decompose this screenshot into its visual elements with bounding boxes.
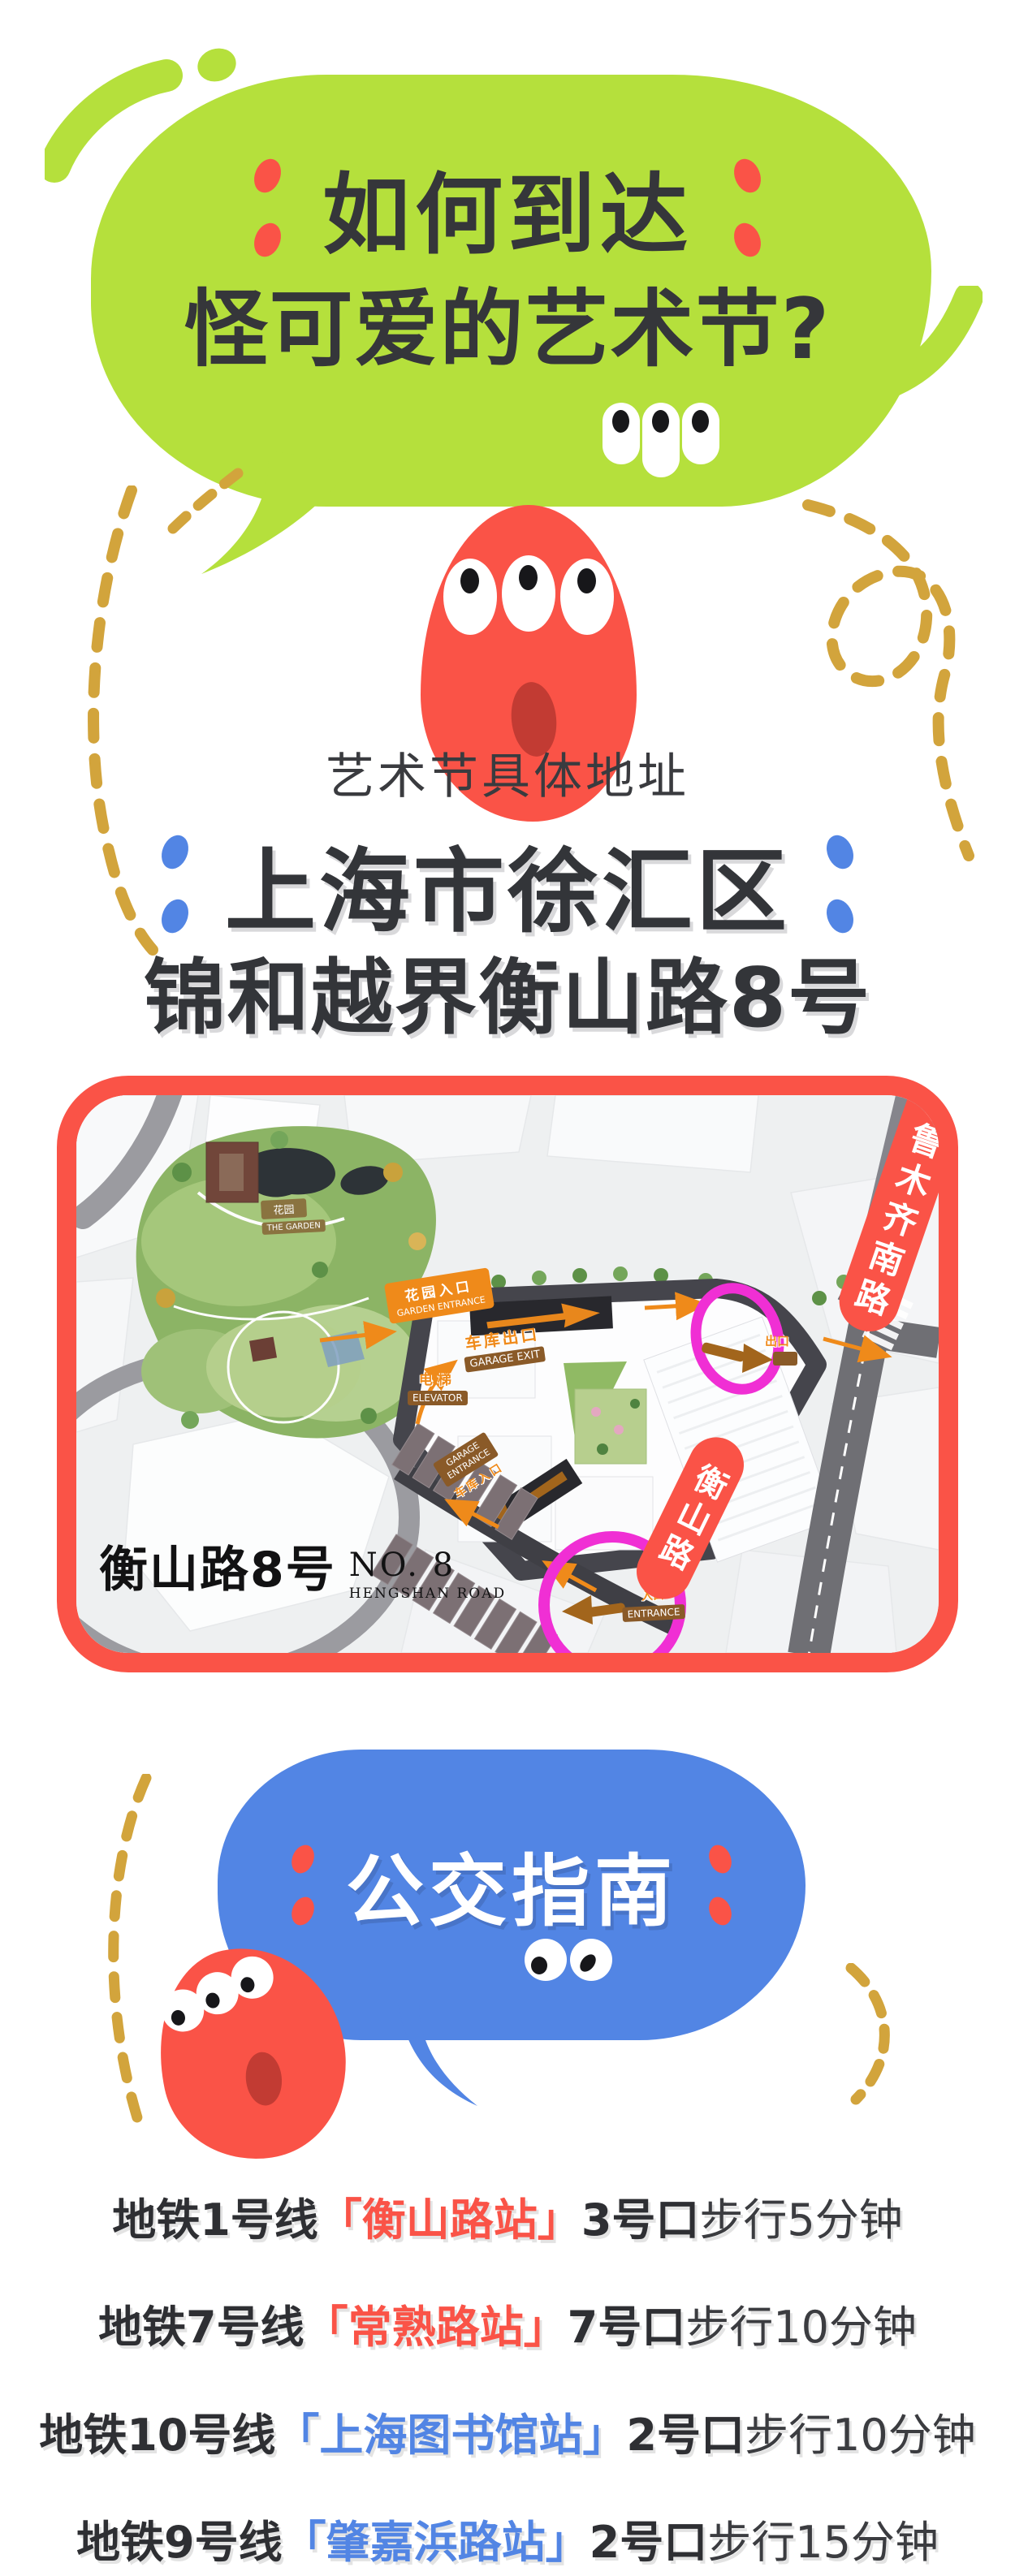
transit-bubble-tail <box>380 2004 506 2117</box>
blue-colon-decoration <box>162 835 188 934</box>
red-colon-decoration <box>710 1845 731 1926</box>
eye-icon <box>525 1939 567 1981</box>
red-colon-decoration <box>255 158 280 257</box>
address-city-row: 上海市徐汇区 <box>0 818 1015 950</box>
metro-line-4: 地铁9号线「肇嘉浜路站」2号口步行15分钟 <box>0 2506 1015 2570</box>
elevator-cn: 电梯 <box>408 1368 468 1388</box>
transit-title-row: 公交指南 <box>203 1828 820 1941</box>
address-venue: 锦和越界衡山路8号 <box>144 932 871 1051</box>
eye-icon <box>570 1939 612 1981</box>
metro-line-1: 地铁1号线「衡山路站」3号口步行5分钟 <box>0 2184 1015 2248</box>
metro-station: 「上海图书馆站」 <box>275 2399 626 2463</box>
metro-line-3: 地铁10号线「上海图书馆站」2号口步行10分钟 <box>0 2399 1015 2463</box>
metro-station: 「肇嘉浜路站」 <box>283 2506 590 2570</box>
metro-walk-time: 步行5分钟 <box>699 2184 902 2248</box>
map-logo-cn: 衡山路8号 <box>99 1543 336 1597</box>
metro-exit: 2号口 <box>590 2506 708 2570</box>
exit-label: 出口 <box>765 1332 797 1366</box>
red-colon-decoration <box>292 1845 313 1926</box>
metro-walk-time: 步行10分钟 <box>745 2399 976 2463</box>
eye-icon <box>682 403 719 464</box>
eye-icon <box>603 403 640 464</box>
eye-icon <box>502 555 555 632</box>
mouth-icon <box>244 2050 285 2107</box>
eye-icon <box>642 403 680 477</box>
festival-directions-poster: 如何到达 怪可爱的艺术节? 艺术节具体地址 上海市徐汇区 锦和越界衡山路8号 <box>0 0 1015 2576</box>
address-city: 上海市徐汇区 <box>225 818 790 950</box>
transit-title: 公交指南 <box>346 1828 677 1941</box>
exit-cn: 出口 <box>765 1332 797 1349</box>
metro-line-name: 地铁9号线 <box>76 2506 283 2570</box>
metro-walk-time: 步行15分钟 <box>707 2506 939 2570</box>
blue-colon-decoration <box>827 835 853 934</box>
garden-label: 花园 THE GARDEN <box>261 1197 326 1235</box>
metro-line-2: 地铁7号线「常熟路站」7号口步行10分钟 <box>0 2291 1015 2355</box>
eye-icon <box>443 559 497 635</box>
metro-station: 「常熟路站」 <box>304 2291 568 2355</box>
elevator-label: 电梯 ELEVATOR <box>408 1368 468 1405</box>
exit-chip <box>773 1352 797 1366</box>
bubble-three-eyes <box>603 403 719 477</box>
map-logo-no8: NO. 8 <box>349 1548 506 1582</box>
metro-exit: 7号口 <box>568 2291 686 2355</box>
hero-title-row1: 如何到达 <box>0 145 1015 271</box>
address-venue-row: 锦和越界衡山路8号 <box>0 932 1015 1051</box>
metro-line-name: 地铁1号线 <box>112 2184 318 2248</box>
garden-label-cn: 花园 <box>261 1198 307 1219</box>
metro-line-name: 地铁10号线 <box>39 2399 275 2463</box>
site-map: 花园 THE GARDEN 花园入口 GARDEN ENTRANCE 车库出口 … <box>57 1076 958 1672</box>
hero-title-row2: 怪可爱的艺术节? <box>0 261 1015 382</box>
metro-line-name: 地铁7号线 <box>98 2291 304 2355</box>
metro-walk-time: 步行10分钟 <box>685 2291 917 2355</box>
metro-station: 「衡山路站」 <box>318 2184 581 2248</box>
eye-icon <box>560 559 614 635</box>
bubble-two-eyes <box>525 1939 612 1981</box>
gold-dashes-small <box>166 467 244 536</box>
address-label: 艺术节具体地址 <box>0 737 1015 808</box>
metro-exit: 3号口 <box>581 2184 700 2248</box>
gold-dashed-arc-right2 <box>843 1963 908 2105</box>
metro-exit: 2号口 <box>626 2399 745 2463</box>
elevator-en: ELEVATOR <box>408 1391 468 1405</box>
gold-dashed-arc-left2 <box>96 1774 169 2139</box>
poster-title-line1: 如何到达 <box>322 145 693 271</box>
red-colon-decoration <box>735 158 760 257</box>
poster-title-line2: 怪可爱的艺术节? <box>184 261 831 382</box>
map-logo-road: HENGSHAN ROAD <box>349 1586 506 1602</box>
map-logo: 衡山路8号 NO. 8 HENGSHAN ROAD <box>99 1543 506 1602</box>
